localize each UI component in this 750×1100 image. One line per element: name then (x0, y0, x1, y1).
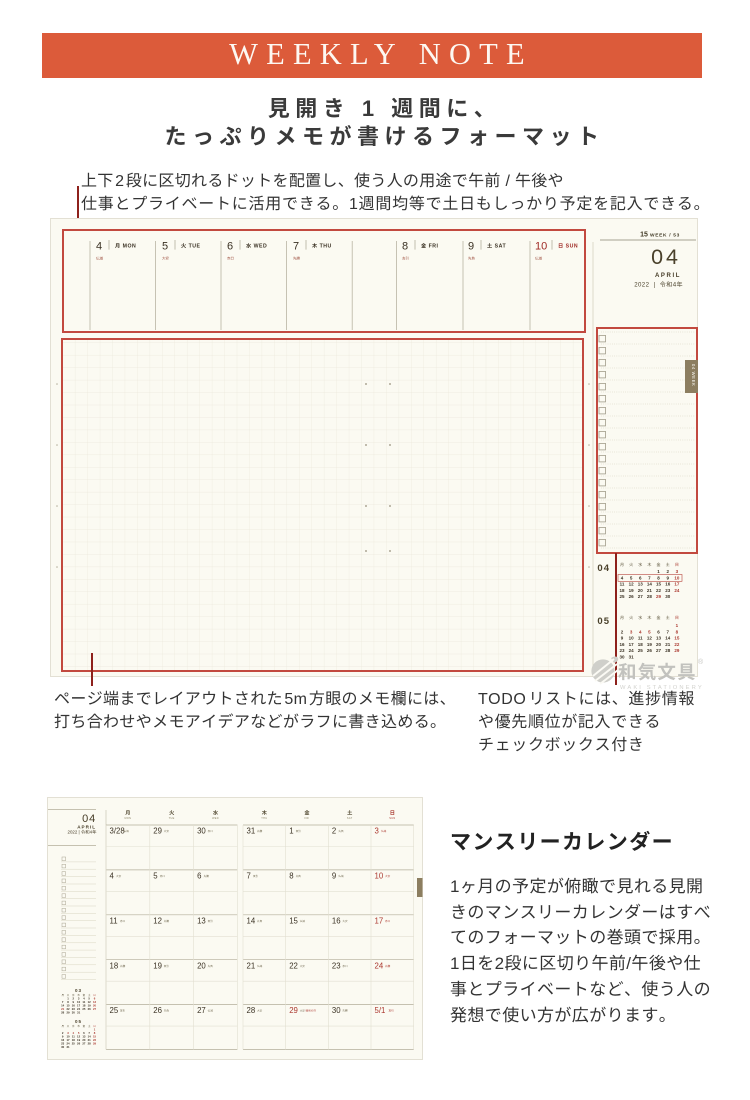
svg-text:25: 25 (72, 1042, 76, 1046)
svg-text:日: 日 (675, 562, 679, 567)
svg-text:土: 土 (666, 615, 670, 620)
svg-text:1: 1 (289, 827, 293, 836)
svg-text:20: 20 (638, 588, 644, 593)
svg-text:14: 14 (647, 582, 653, 587)
svg-text:7: 7 (247, 872, 251, 881)
svg-text:22: 22 (289, 961, 298, 970)
svg-text:16: 16 (665, 582, 671, 587)
svg-text:27: 27 (82, 1042, 86, 1046)
svg-text:14: 14 (665, 636, 671, 641)
svg-text:24: 24 (674, 588, 680, 593)
svg-text:友引: 友引 (389, 1009, 395, 1013)
svg-text:木: 木 (647, 562, 651, 567)
svg-text:26: 26 (153, 1006, 162, 1015)
svg-text:大安: 大安 (116, 874, 122, 878)
svg-text:03: 03 (75, 988, 82, 993)
svg-text:友引: 友引 (120, 1009, 126, 1013)
svg-text:金: 金 (304, 810, 310, 817)
svg-text:31: 31 (247, 827, 256, 836)
svg-text:17: 17 (674, 582, 680, 587)
svg-text:先勝: 先勝 (164, 919, 170, 923)
svg-text:大安 昭和の日: 大安 昭和の日 (300, 1009, 317, 1013)
svg-text:月: 月 (125, 810, 130, 817)
svg-text:05: 05 (597, 616, 610, 627)
svg-text:大安: 大安 (342, 919, 348, 923)
svg-text:04 WEEK: 04 WEEK (691, 364, 696, 386)
svg-text:29: 29 (656, 594, 662, 599)
svg-text:日: 日 (390, 810, 395, 817)
svg-text:水: 水 (638, 562, 642, 567)
svg-text:26: 26 (629, 594, 635, 599)
svg-text:30: 30 (197, 827, 206, 836)
svg-text:水: 水 (213, 810, 219, 817)
svg-text:赤口: 赤口 (385, 919, 391, 923)
svg-text:11: 11 (110, 916, 118, 925)
svg-text:17: 17 (375, 916, 384, 925)
svg-text:土 SAT: 土 SAT (487, 243, 506, 250)
svg-text:10: 10 (629, 636, 635, 641)
svg-text:11: 11 (638, 636, 643, 641)
svg-text:友引: 友引 (402, 257, 409, 261)
svg-text:28: 28 (61, 1011, 65, 1015)
svg-text:大安: 大安 (164, 829, 170, 833)
svg-text:金: 金 (657, 615, 661, 620)
svg-text:27: 27 (638, 594, 644, 599)
svg-text:土: 土 (347, 810, 352, 817)
svg-text:26: 26 (88, 1007, 92, 1011)
svg-text:金 FRI: 金 FRI (421, 243, 439, 250)
svg-text:先負: 先負 (208, 964, 214, 968)
svg-text:大安: 大安 (162, 257, 169, 261)
svg-text:THU: THU (261, 817, 267, 820)
svg-text:仏滅: 仏滅 (96, 257, 103, 261)
svg-text:31: 31 (66, 1045, 70, 1049)
svg-text:水: 水 (638, 615, 642, 620)
svg-text:先勝: 先勝 (342, 1009, 348, 1013)
svg-text:13: 13 (656, 636, 662, 641)
svg-text:28: 28 (647, 594, 653, 599)
svg-text:4: 4 (96, 241, 102, 253)
svg-text:仏滅: 仏滅 (208, 1009, 214, 1013)
svg-text:仏滅: 仏滅 (535, 257, 543, 261)
svg-text:赤口: 赤口 (227, 257, 234, 261)
svg-text:先負: 先負 (257, 919, 263, 923)
svg-text:®: ® (698, 658, 704, 666)
svg-text:29: 29 (289, 1006, 298, 1015)
svg-text:赤口: 赤口 (208, 829, 214, 833)
svg-text:25: 25 (82, 1007, 86, 1011)
svg-text:先勝: 先勝 (204, 874, 210, 878)
svg-text:先負: 先負 (468, 257, 476, 261)
svg-text:先負: 先負 (296, 874, 302, 878)
svg-text:23: 23 (332, 961, 341, 970)
svg-text:15: 15 (656, 582, 662, 587)
svg-text:18: 18 (110, 961, 119, 970)
svg-text:仏滅: 仏滅 (257, 964, 263, 968)
svg-text:6: 6 (227, 241, 233, 253)
svg-text:友引: 友引 (164, 964, 170, 968)
svg-text:日 SUN: 日 SUN (558, 243, 578, 250)
svg-text:3: 3 (375, 827, 379, 836)
svg-text:8: 8 (402, 241, 408, 253)
svg-text:火: 火 (629, 562, 633, 567)
svg-text:6: 6 (197, 872, 201, 881)
svg-text:友引: 友引 (296, 829, 302, 833)
svg-text:05: 05 (75, 1019, 82, 1024)
svg-text:21: 21 (247, 961, 256, 970)
svg-text:先勝: 先勝 (385, 964, 391, 968)
svg-text:木: 木 (262, 810, 268, 817)
svg-text:火: 火 (629, 615, 633, 620)
svg-text:7: 7 (293, 241, 299, 253)
svg-text:5: 5 (153, 872, 158, 881)
svg-text:15: 15 (674, 636, 680, 641)
svg-text:仏滅: 仏滅 (124, 829, 130, 833)
svg-text:26: 26 (77, 1042, 81, 1046)
svg-text:3/28: 3/28 (110, 827, 125, 836)
svg-text:MON: MON (125, 817, 132, 820)
svg-text:月: 月 (620, 615, 624, 620)
svg-text:火 TUE: 火 TUE (181, 243, 201, 250)
svg-text:先勝: 先勝 (257, 829, 263, 833)
svg-text:31: 31 (77, 1011, 81, 1015)
svg-text:27: 27 (197, 1006, 206, 1015)
svg-text:28: 28 (88, 1042, 92, 1046)
svg-text:月: 月 (620, 562, 624, 567)
svg-text:2022 | 令和4年: 2022 | 令和4年 (68, 829, 98, 834)
svg-text:21: 21 (647, 588, 653, 593)
svg-text:16: 16 (332, 916, 341, 925)
svg-text:先勝: 先勝 (120, 964, 126, 968)
svg-text:18: 18 (619, 588, 625, 593)
svg-text:赤口: 赤口 (342, 964, 348, 968)
svg-text:仏滅: 仏滅 (338, 874, 344, 878)
svg-text:11: 11 (620, 582, 625, 587)
svg-text:先勝: 先勝 (293, 257, 301, 261)
svg-text:SAT: SAT (347, 817, 353, 820)
svg-text:月 MON: 月 MON (115, 243, 136, 250)
svg-text:大安: 大安 (300, 964, 306, 968)
svg-text:先負: 先負 (338, 829, 344, 833)
svg-text:13: 13 (638, 582, 644, 587)
svg-text:25: 25 (110, 1006, 119, 1015)
svg-text:8: 8 (289, 872, 293, 881)
svg-text:友引: 友引 (253, 874, 259, 878)
svg-text:10: 10 (535, 241, 547, 253)
svg-text:水 WED: 水 WED (246, 243, 267, 250)
svg-text:28: 28 (247, 1006, 256, 1015)
svg-text:30: 30 (665, 594, 671, 599)
svg-text:23: 23 (665, 588, 671, 593)
svg-text:04: 04 (651, 245, 681, 269)
svg-text:木: 木 (647, 615, 651, 620)
svg-text:27: 27 (93, 1007, 97, 1011)
svg-text:29: 29 (93, 1042, 97, 1046)
svg-text:和気文具: 和気文具 (618, 662, 697, 683)
svg-text:WAKI STATIONERY: WAKI STATIONERY (620, 685, 704, 691)
svg-text:9: 9 (468, 241, 474, 253)
svg-text:2022 | 令和4年: 2022 | 令和4年 (634, 281, 683, 289)
svg-text:19: 19 (153, 961, 162, 970)
svg-text:2: 2 (332, 827, 336, 836)
svg-text:22: 22 (656, 588, 662, 593)
svg-text:日: 日 (675, 615, 679, 620)
svg-text:12: 12 (647, 636, 653, 641)
svg-text:赤口: 赤口 (120, 919, 126, 923)
svg-text:WED: WED (212, 817, 219, 820)
svg-text:13: 13 (197, 916, 206, 925)
svg-text:19: 19 (629, 588, 635, 593)
svg-text:30: 30 (72, 1011, 76, 1015)
svg-text:15: 15 (289, 916, 298, 925)
svg-text:大安: 大安 (385, 874, 391, 878)
svg-text:仏滅: 仏滅 (381, 829, 387, 833)
svg-text:大安: 大安 (257, 1009, 263, 1013)
svg-text:29: 29 (66, 1011, 70, 1015)
svg-text:SUN: SUN (389, 817, 395, 820)
svg-text:5/1: 5/1 (375, 1006, 386, 1015)
svg-text:4: 4 (110, 872, 115, 881)
svg-text:04: 04 (82, 813, 96, 825)
svg-text:10: 10 (375, 872, 384, 881)
svg-text:火: 火 (169, 810, 175, 817)
svg-text:24: 24 (375, 961, 384, 970)
svg-text:10: 10 (674, 575, 680, 580)
svg-text:25: 25 (619, 594, 625, 599)
svg-text:04: 04 (597, 563, 610, 574)
svg-text:30: 30 (332, 1006, 341, 1015)
svg-text:29: 29 (153, 827, 162, 836)
svg-text:20: 20 (197, 961, 206, 970)
svg-text:金: 金 (657, 562, 661, 567)
svg-text:12: 12 (629, 582, 635, 587)
svg-text:友引: 友引 (208, 919, 214, 923)
svg-text:9: 9 (332, 872, 336, 881)
svg-text:木 THU: 木 THU (312, 243, 332, 250)
svg-text:土: 土 (666, 562, 670, 567)
svg-text:赤口: 赤口 (160, 874, 166, 878)
svg-text:5: 5 (162, 241, 168, 253)
svg-text:仏滅: 仏滅 (300, 919, 306, 923)
svg-text:15 WEEK / 53: 15 WEEK / 53 (640, 232, 680, 239)
svg-text:APRIL: APRIL (655, 273, 681, 279)
svg-text:先負: 先負 (164, 1009, 170, 1013)
svg-text:TUE: TUE (169, 817, 175, 820)
svg-text:12: 12 (153, 916, 162, 925)
svg-text:14: 14 (247, 916, 256, 925)
svg-text:FRI: FRI (305, 817, 310, 820)
svg-text:30: 30 (61, 1045, 65, 1049)
